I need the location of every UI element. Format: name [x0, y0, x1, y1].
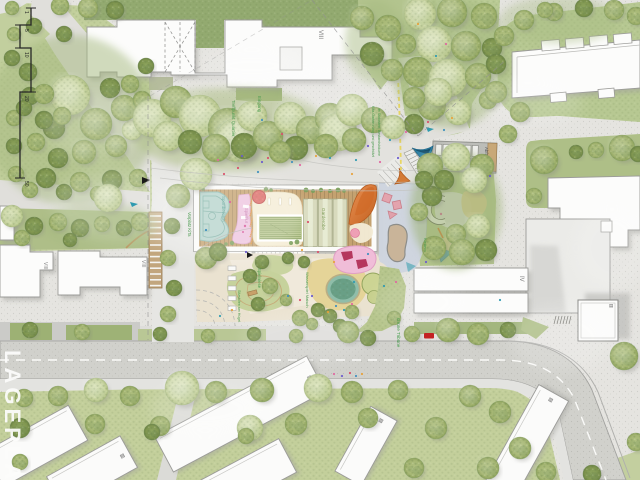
- svg-text:Wasserspiel Matsch: Wasserspiel Matsch: [305, 272, 310, 308]
- svg-text:VIII: VIII: [317, 30, 323, 39]
- svg-text:Kita-Garten ruhig und geschütz: Kita-Garten ruhig und geschützt: [371, 106, 375, 157]
- svg-text:Eingang: Eingang: [257, 96, 262, 113]
- svg-text:Grüne Tribüne: Grüne Tribüne: [396, 318, 401, 348]
- svg-text:5: 5: [23, 29, 29, 32]
- svg-text:VIII: VIII: [42, 262, 48, 270]
- svg-text:10: 10: [23, 52, 29, 58]
- svg-text:20: 20: [23, 96, 29, 102]
- svg-text:VIII: VIII: [140, 260, 146, 268]
- svg-text:Garderobe: Garderobe: [321, 208, 326, 230]
- svg-text:LAGEPLAN: LAGEPLAN: [0, 350, 25, 480]
- svg-text:Vorplatz KiTa: Vorplatz KiTa: [187, 212, 192, 237]
- svg-text:50: 50: [23, 181, 29, 187]
- svg-text:Sitzstufen am Hügel: Sitzstufen am Hügel: [237, 290, 241, 322]
- svg-text:Spielwiese: Spielwiese: [257, 268, 262, 289]
- svg-text:1: 1: [23, 11, 29, 14]
- svg-text:Treffpunkt Quartier: Treffpunkt Quartier: [231, 100, 236, 137]
- svg-text:im Südosten, Bestandsbäume: im Südosten, Bestandsbäume: [377, 108, 381, 156]
- svg-text:Klettern: Klettern: [423, 238, 428, 252]
- svg-text:IV: IV: [518, 276, 524, 282]
- svg-text:▤: ▤: [609, 303, 614, 308]
